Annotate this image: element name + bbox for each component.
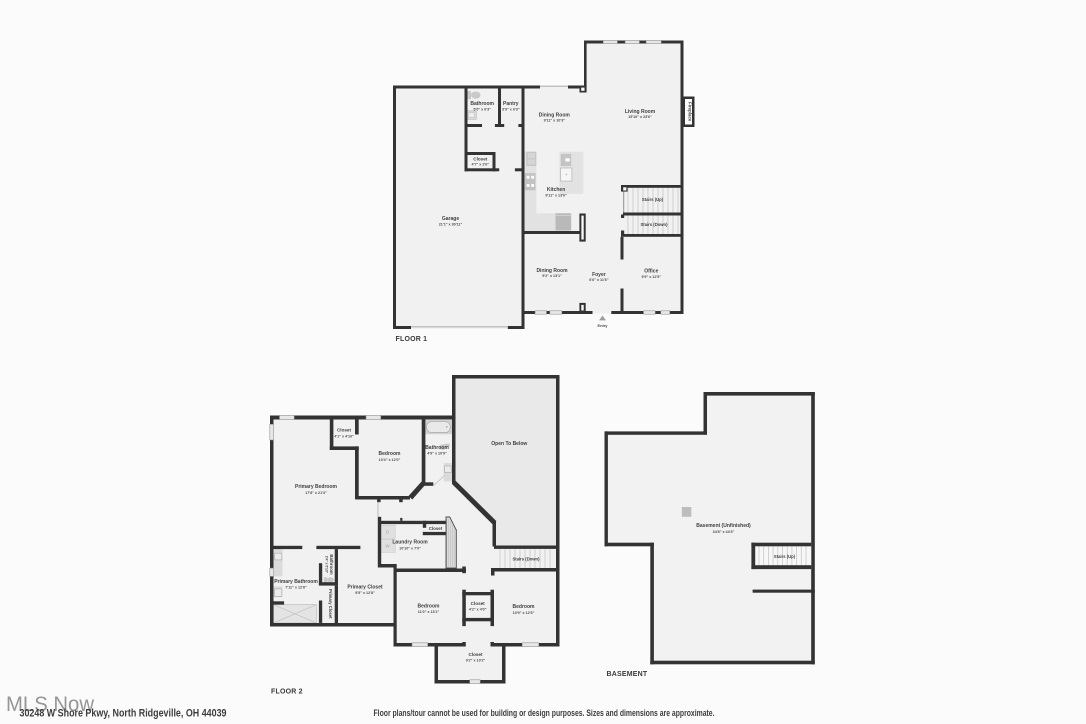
svg-text:Primary Bathroom: Primary Bathroom bbox=[274, 579, 318, 585]
svg-text:4'2" x 4'0": 4'2" x 4'0" bbox=[469, 608, 487, 612]
svg-text:Bathroom: Bathroom bbox=[329, 554, 334, 574]
svg-text:9'2" x 10'2": 9'2" x 10'2" bbox=[466, 658, 486, 662]
svg-text:Basement (Unfinished): Basement (Unfinished) bbox=[696, 523, 751, 529]
svg-text:15'10" x 23'6": 15'10" x 23'6" bbox=[628, 115, 652, 119]
svg-text:10'9" x 12'5": 10'9" x 12'5" bbox=[513, 611, 535, 615]
svg-text:9'5" x 12'8": 9'5" x 12'8" bbox=[355, 591, 375, 595]
svg-text:9'2" x 13'1": 9'2" x 13'1" bbox=[542, 274, 562, 278]
svg-text:Kitchen: Kitchen bbox=[547, 187, 565, 193]
svg-text:Bedroom: Bedroom bbox=[418, 603, 441, 609]
svg-text:Stairs (Up): Stairs (Up) bbox=[774, 554, 796, 559]
svg-text:Closet: Closet bbox=[468, 652, 483, 657]
svg-text:Pantry: Pantry bbox=[503, 101, 519, 107]
svg-text:Bathroom: Bathroom bbox=[470, 101, 494, 107]
svg-text:10'10" x 7'0": 10'10" x 7'0" bbox=[399, 546, 421, 550]
svg-text:Dining Room: Dining Room bbox=[536, 268, 568, 274]
svg-text:Closet: Closet bbox=[337, 428, 352, 433]
svg-text:Bedroom: Bedroom bbox=[379, 451, 402, 457]
svg-text:Stairs (Up): Stairs (Up) bbox=[642, 197, 664, 202]
svg-text:6'6" x 11'6": 6'6" x 11'6" bbox=[589, 278, 609, 282]
svg-text:Dining Room: Dining Room bbox=[539, 112, 571, 118]
svg-text:Primary Bedroom: Primary Bedroom bbox=[295, 484, 338, 490]
svg-text:Bedroom: Bedroom bbox=[513, 604, 536, 610]
svg-text:17'8" x 21'3": 17'8" x 21'3" bbox=[305, 491, 327, 495]
svg-text:9'11" x 13'6": 9'11" x 13'6" bbox=[545, 194, 567, 198]
svg-text:Open To Below: Open To Below bbox=[491, 441, 527, 447]
svg-text:30248 W Shore Pkwy, North Ridg: 30248 W Shore Pkwy, North Ridgeville, OH… bbox=[20, 708, 227, 720]
svg-text:Foyer: Foyer bbox=[592, 272, 606, 278]
svg-text:Primary Closet: Primary Closet bbox=[347, 584, 383, 590]
svg-text:4'1" x 4'10": 4'1" x 4'10" bbox=[334, 434, 354, 438]
svg-text:Laundry Room: Laundry Room bbox=[392, 540, 428, 546]
svg-text:Garage: Garage bbox=[442, 216, 459, 222]
svg-text:3'9" x 6'3": 3'9" x 6'3" bbox=[502, 107, 520, 111]
svg-text:2'4" x 5'10": 2'4" x 5'10" bbox=[325, 556, 329, 574]
svg-text:Stairs (Down): Stairs (Down) bbox=[513, 557, 541, 562]
svg-text:5'0" x 6'3": 5'0" x 6'3" bbox=[473, 107, 491, 111]
svg-text:Living Room: Living Room bbox=[625, 109, 656, 115]
svg-text:9'11" x 10'3": 9'11" x 10'3" bbox=[544, 119, 566, 123]
svg-text:Bathroom: Bathroom bbox=[425, 445, 449, 451]
svg-text:4'7" x 2'6": 4'7" x 2'6" bbox=[472, 163, 490, 167]
svg-text:Closet: Closet bbox=[473, 156, 488, 161]
svg-text:FLOOR 2: FLOOR 2 bbox=[271, 689, 303, 696]
svg-text:W: W bbox=[385, 544, 390, 549]
svg-text:11'0" x 13'1": 11'0" x 13'1" bbox=[418, 610, 440, 614]
svg-text:BASEMENT: BASEMENT bbox=[607, 671, 648, 678]
svg-text:9'9" x 12'5": 9'9" x 12'5" bbox=[641, 275, 661, 279]
svg-text:Office: Office bbox=[644, 269, 658, 275]
svg-text:Closet: Closet bbox=[429, 526, 443, 531]
svg-text:Entry: Entry bbox=[598, 323, 609, 328]
svg-text:Fireplace: Fireplace bbox=[688, 102, 693, 122]
svg-text:10'4" x 12'0": 10'4" x 12'0" bbox=[379, 458, 401, 462]
svg-text:Floor plans/tour cannot be use: Floor plans/tour cannot be used for buil… bbox=[374, 708, 715, 719]
svg-text:4'9" x 10'9": 4'9" x 10'9" bbox=[427, 452, 447, 456]
svg-text:Primary Closet: Primary Closet bbox=[328, 589, 333, 619]
svg-text:Stairs (Down): Stairs (Down) bbox=[641, 222, 669, 227]
svg-text:FLOOR 1: FLOOR 1 bbox=[396, 336, 428, 343]
svg-text:7'11" x 12'8": 7'11" x 12'8" bbox=[285, 586, 307, 590]
svg-text:Closet: Closet bbox=[471, 601, 486, 606]
svg-text:21'1" x 39'11": 21'1" x 39'11" bbox=[439, 223, 463, 227]
svg-text:34'8" x 44'3": 34'8" x 44'3" bbox=[713, 530, 735, 534]
